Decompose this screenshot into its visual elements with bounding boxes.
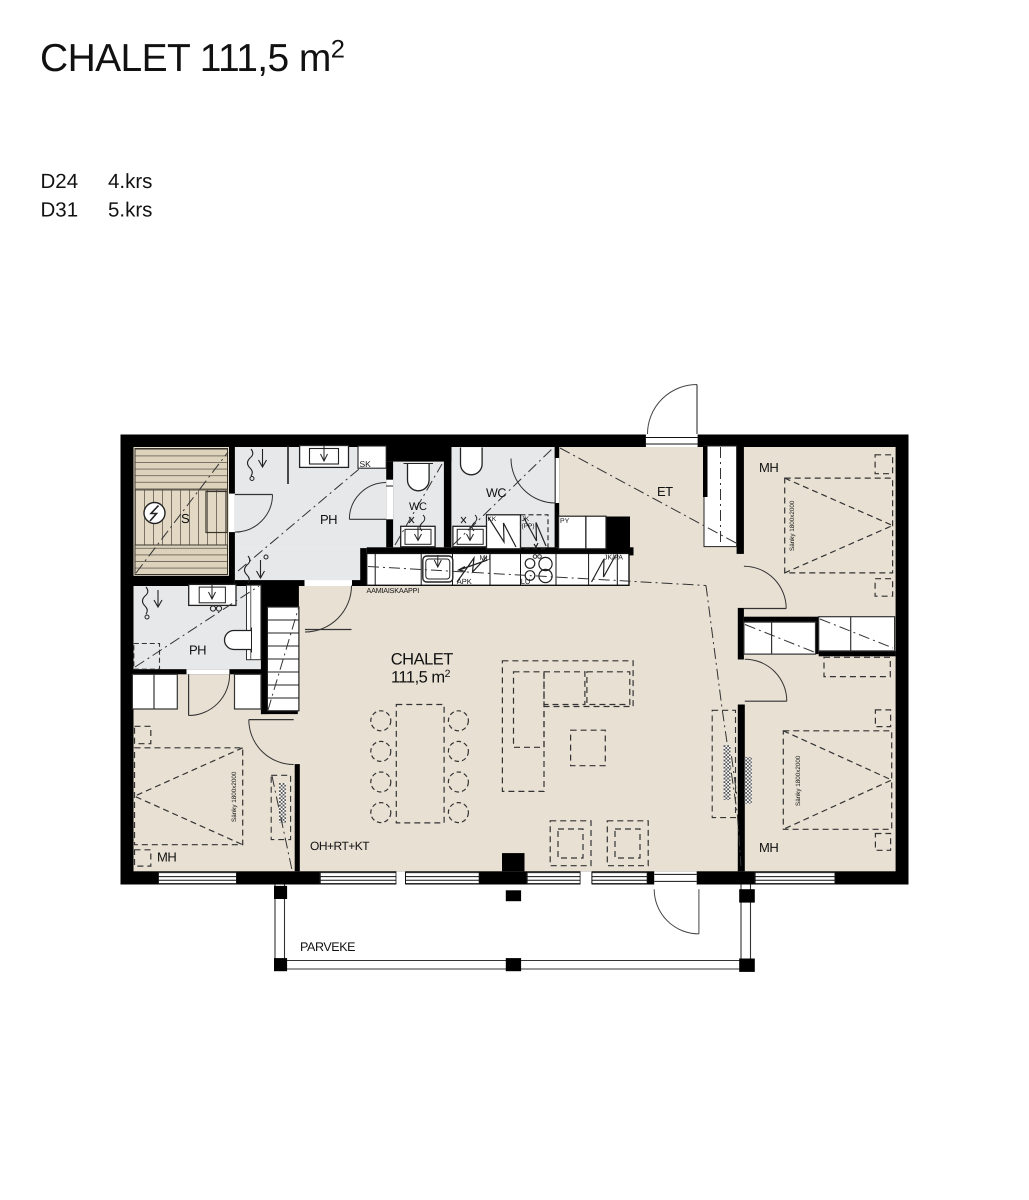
svg-text:AAMIAISKAAPPI: AAMIAISKAAPPI <box>367 586 420 595</box>
svg-text:S: S <box>181 511 190 526</box>
svg-text:4.krs: 4.krs <box>108 170 152 193</box>
svg-text:SK: SK <box>360 459 372 469</box>
svg-text:Sänky 1800x2000: Sänky 1800x2000 <box>231 771 238 822</box>
svg-text:ET: ET <box>657 484 673 499</box>
svg-text:OH+RT+KT: OH+RT+KT <box>310 839 370 853</box>
svg-text:KK: KK <box>488 516 497 523</box>
svg-text:(PP): (PP) <box>522 523 535 530</box>
svg-text:D31: D31 <box>41 198 79 221</box>
svg-text:APK: APK <box>457 577 472 586</box>
svg-text:D24: D24 <box>41 170 79 193</box>
svg-text:LU: LU <box>521 577 531 586</box>
svg-text:CHALET 111,5 m2: CHALET 111,5 m2 <box>40 35 344 80</box>
svg-text:111,5 m2: 111,5 m2 <box>391 668 451 687</box>
svg-text:Sänky 1800x2000: Sänky 1800x2000 <box>789 500 796 551</box>
svg-text:JK: JK <box>522 516 530 523</box>
svg-text:PY: PY <box>560 518 570 525</box>
svg-text:WC: WC <box>486 486 506 500</box>
svg-text:5.krs: 5.krs <box>108 198 152 221</box>
svg-text:MH: MH <box>157 850 176 865</box>
svg-text:MH: MH <box>759 460 778 475</box>
svg-text:MH: MH <box>759 840 778 855</box>
svg-text:PH: PH <box>320 512 337 527</box>
svg-text:MU: MU <box>480 555 491 562</box>
svg-text:PH: PH <box>189 643 206 658</box>
svg-text:Sänky 1800x2000: Sänky 1800x2000 <box>795 755 802 806</box>
svg-text:PARVEKE: PARVEKE <box>300 940 355 954</box>
svg-text:JK/PA: JK/PA <box>604 554 623 562</box>
svg-text:WC: WC <box>409 501 427 513</box>
svg-text:CHALET: CHALET <box>391 650 454 668</box>
